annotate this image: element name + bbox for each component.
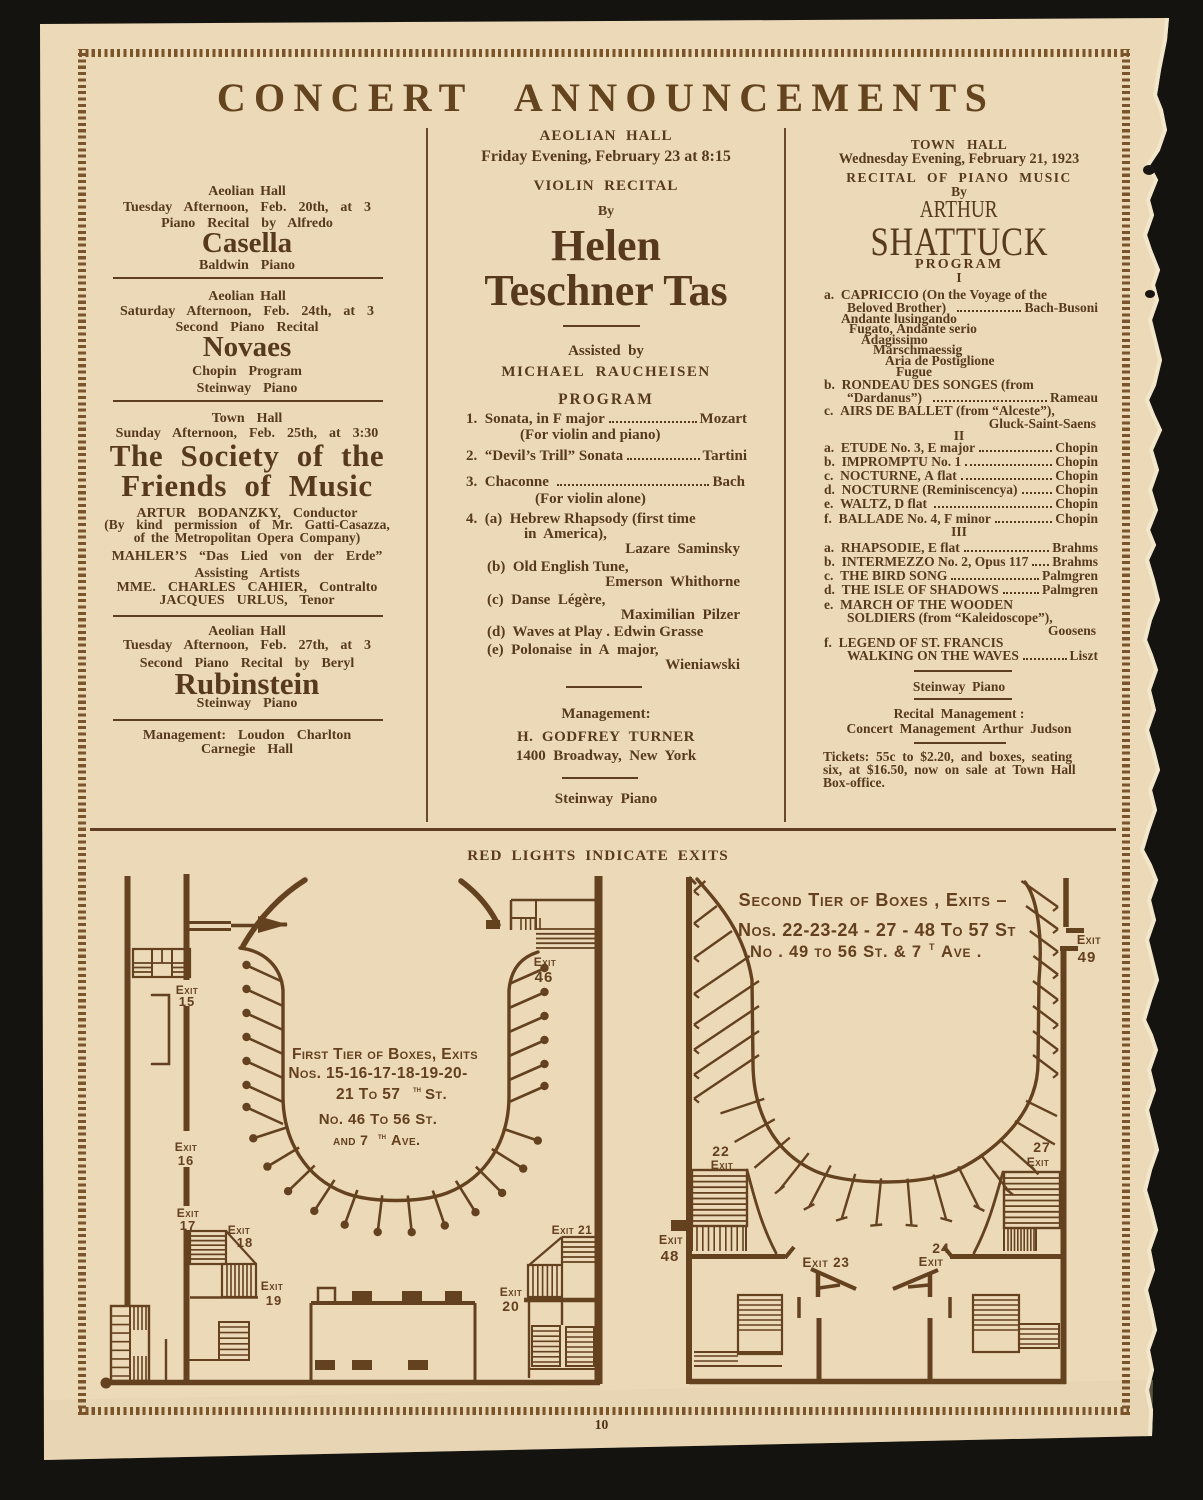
svg-text:Exit 21: Exit 21 [552, 1223, 593, 1237]
svg-text:No . 49 to 56 St. & 7: No . 49 to 56 St. & 7 [750, 943, 922, 961]
svg-text:49: 49 [1078, 949, 1097, 966]
svg-text:22: 22 [712, 1143, 730, 1159]
svg-text:St.: St. [425, 1086, 447, 1103]
svg-text:Ave.: Ave. [391, 1133, 420, 1149]
svg-text:19: 19 [266, 1293, 282, 1308]
svg-text:Exit: Exit [500, 1285, 522, 1299]
svg-text:th: th [413, 1084, 421, 1094]
svg-text:46: 46 [535, 969, 554, 986]
svg-text:48: 48 [661, 1248, 680, 1265]
svg-text:Exit: Exit [534, 955, 556, 969]
svg-text:Exit: Exit [175, 1140, 197, 1154]
svg-text:15: 15 [179, 994, 195, 1009]
svg-text:T: T [929, 942, 935, 952]
svg-text:and 7: and 7 [333, 1132, 368, 1148]
svg-text:Exit: Exit [1027, 1155, 1049, 1169]
svg-text:Nos. 22-23-24 - 27 - 48 To 57: Nos. 22-23-24 - 27 - 48 To 57 St [738, 920, 1016, 940]
svg-text:Exit: Exit [919, 1254, 944, 1269]
svg-text:Nos. 15-16-17-18-19-20-: Nos. 15-16-17-18-19-20- [288, 1065, 467, 1082]
svg-text:First Tier of Boxes, Exits: First Tier of Boxes, Exits [292, 1046, 478, 1063]
svg-text:21 To 57: 21 To 57 [336, 1086, 400, 1103]
svg-text:16: 16 [178, 1153, 194, 1168]
svg-text:Exit 23: Exit 23 [802, 1255, 849, 1270]
svg-text:th: th [378, 1131, 386, 1141]
svg-text:Exit: Exit [659, 1233, 683, 1247]
svg-text:No. 46 To 56 St.: No. 46 To 56 St. [319, 1111, 438, 1128]
svg-text:Exit: Exit [261, 1279, 283, 1293]
svg-text:18: 18 [237, 1235, 253, 1250]
svg-text:Ave .: Ave . [941, 943, 982, 961]
svg-text:Second Tier of Boxes , Exits –: Second Tier of Boxes , Exits – [739, 890, 1008, 910]
svg-text:20: 20 [502, 1298, 520, 1314]
svg-text:Exit: Exit [1077, 933, 1101, 947]
svg-text:27: 27 [1033, 1139, 1051, 1155]
